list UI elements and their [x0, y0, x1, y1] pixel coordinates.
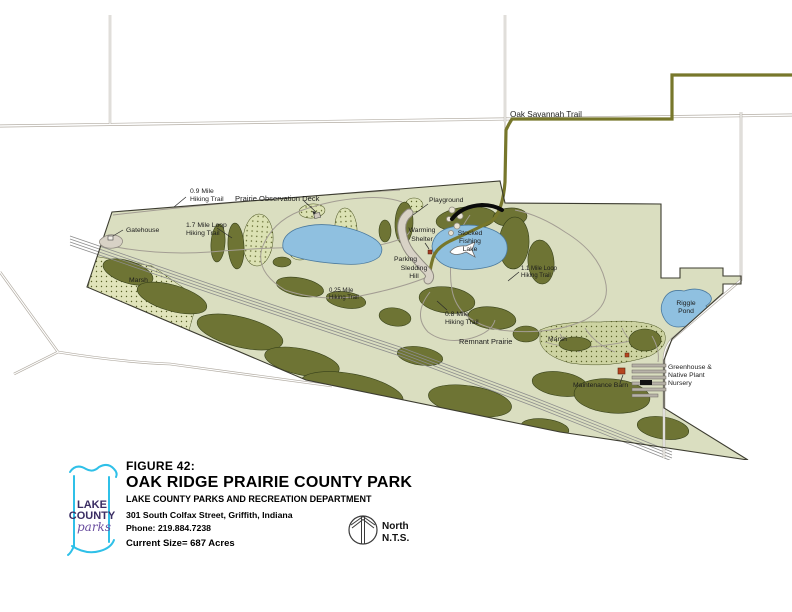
warming-shelter-building — [428, 250, 432, 254]
maintenance-barn-building — [618, 368, 625, 374]
figure-page: Oak Savannah Trail Gatehouse 0.9 Mile Hi… — [0, 0, 792, 612]
label-marsh-east: Marsh — [548, 336, 567, 343]
nts-label: N.T.S. — [382, 533, 409, 544]
department-line: LAKE COUNTY PARKS AND RECREATION DEPARTM… — [126, 494, 412, 504]
lake-county-parks-logo: LAKE COUNTY parks — [64, 460, 122, 560]
label-trail-08-l1: 0.8 Mile — [445, 311, 469, 318]
park-map: Oak Savannah Trail Gatehouse 0.9 Mile Hi… — [0, 0, 792, 460]
logo-script: parks — [77, 520, 111, 534]
label-riggle-l2: Pond — [678, 308, 694, 315]
label-stocked-l2: Fishing — [459, 238, 481, 245]
label-trail-09-l2: Hiking Trail — [190, 196, 224, 203]
north-arrow: North N.T.S. — [338, 505, 448, 560]
label-riggle-l1: Riggle — [676, 300, 695, 307]
figure-number: FIGURE 42: — [126, 459, 412, 473]
label-trail-08-l2: Hiking Trail — [445, 319, 479, 326]
label-greenhouse-l3: Nursery — [668, 380, 692, 387]
label-loop-17-l2: Hiking Trail — [186, 230, 220, 237]
label-trail-09-l1: 0.9 Mile — [190, 188, 214, 195]
greenhouse-black-building — [640, 380, 652, 385]
label-loop-11-l2: Hiking Trail — [521, 273, 551, 279]
label-observation-deck: Prairie Observation Deck — [235, 194, 320, 203]
label-maintenance-barn: Maintenance Barn — [573, 382, 628, 389]
label-trail-025-l1: 0.25 Mile — [329, 288, 354, 294]
label-gatehouse: Gatehouse — [126, 227, 159, 234]
label-trail-025-l2: Hiking Trail — [329, 295, 359, 301]
label-loop-17-l1: 1.7 Mile Loop — [186, 222, 227, 229]
label-stocked-l1: Stocked — [458, 230, 483, 237]
label-playground: Playground — [429, 197, 464, 204]
label-greenhouse-l1: Greenhouse & — [668, 364, 712, 371]
label-stocked-l3: Lake — [463, 246, 478, 253]
nursery-marker — [625, 353, 629, 357]
label-marsh-west: Marsh — [129, 277, 148, 284]
label-sledding-l1: Sledding — [401, 265, 428, 272]
label-loop-11-l1: 1.1 Mile Loop — [521, 266, 558, 272]
label-parking: Parking — [394, 256, 417, 263]
label-oak-savannah-trail: Oak Savannah Trail — [510, 110, 582, 119]
label-remnant-prairie: Remnant Prairie — [459, 337, 512, 346]
north-label: North — [382, 521, 409, 532]
gatehouse-building — [108, 236, 113, 240]
label-warming-l2: Shelter — [411, 236, 433, 243]
label-warming-l1: Warming — [409, 227, 436, 234]
label-greenhouse-l2: Native Plant — [668, 372, 705, 379]
park-title: OAK RIDGE PRAIRIE COUNTY PARK — [126, 474, 412, 492]
label-sledding-l2: Hill — [409, 273, 419, 280]
